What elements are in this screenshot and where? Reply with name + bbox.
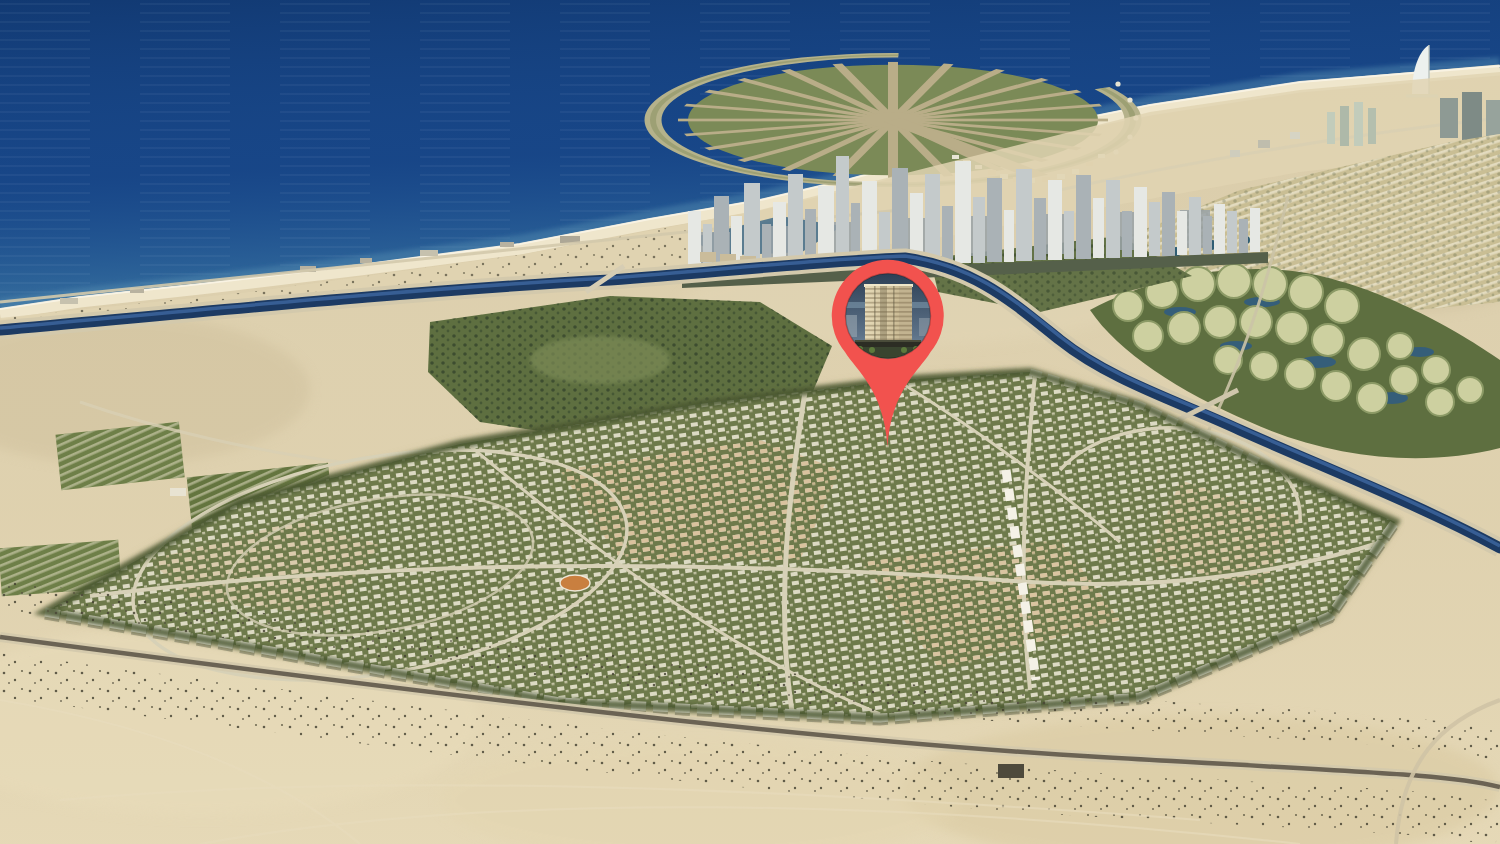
aerial-map (0, 0, 1500, 844)
utility-structure (998, 764, 1024, 778)
sports-track (560, 575, 590, 591)
aerial-map-canvas (0, 0, 1500, 844)
farm-shed (170, 488, 186, 496)
